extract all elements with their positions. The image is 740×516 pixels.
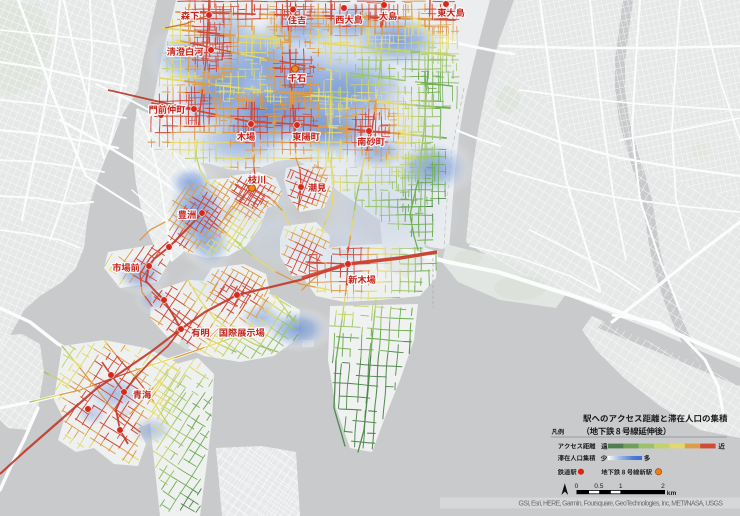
svg-text:km: km <box>667 490 677 497</box>
svg-text:1: 1 <box>619 483 623 490</box>
svg-text:2: 2 <box>661 483 665 490</box>
svg-text:GSI, Esri, HERE, Garmin, Fours: GSI, Esri, HERE, Garmin, Foursquare, Geo… <box>519 501 724 508</box>
svg-text:0.5: 0.5 <box>594 483 603 490</box>
svg-text:0: 0 <box>575 483 579 490</box>
